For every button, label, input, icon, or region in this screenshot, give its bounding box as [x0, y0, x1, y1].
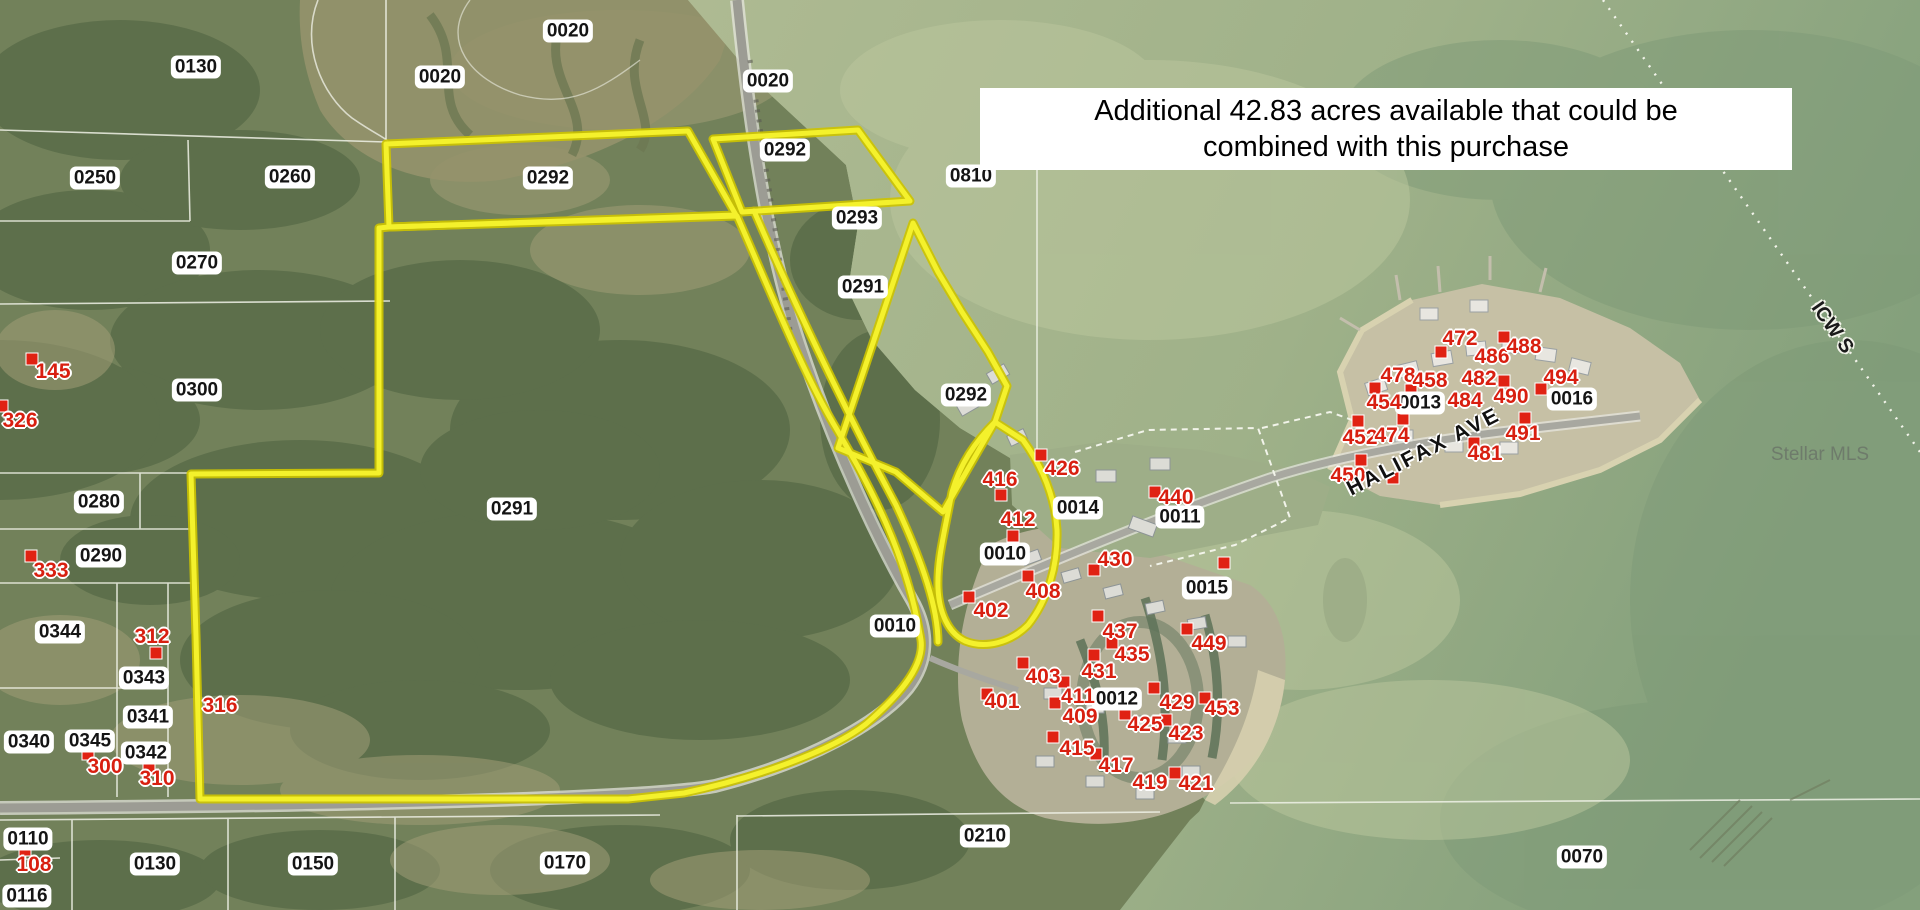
address-label: 417: [1098, 754, 1133, 778]
parcel-label: 0280: [74, 491, 124, 514]
address-marker-icon: [1218, 557, 1231, 570]
parcel-label: 0130: [171, 56, 221, 79]
parcel-label: 0070: [1557, 846, 1607, 869]
parcel-label: 0130: [130, 853, 180, 876]
address-label: 453: [1204, 697, 1239, 721]
address-label: 491: [1505, 422, 1540, 446]
parcel-label: 0010: [980, 543, 1030, 566]
parcel-label: 0291: [487, 498, 537, 521]
address-label: 316: [202, 694, 237, 718]
parcel-label: 0110: [3, 828, 52, 851]
address-label: 454: [1366, 391, 1401, 415]
parcel-label: 0300: [172, 379, 222, 402]
parcel-label: 0210: [960, 825, 1010, 848]
address-label: 430: [1097, 548, 1132, 572]
parcel-label: 0020: [415, 66, 465, 89]
address-label: 310: [139, 767, 174, 791]
parcel-label: 0015: [1182, 577, 1232, 600]
address-label: 472: [1442, 327, 1477, 351]
banner-note: Additional 42.83 acres available that co…: [980, 88, 1792, 170]
address-label: 426: [1044, 457, 1079, 481]
address-label: 333: [33, 559, 68, 583]
parcel-label: 0290: [76, 545, 126, 568]
parcel-label: 0292: [941, 384, 991, 407]
address-label: 409: [1062, 705, 1097, 729]
address-label: 437: [1102, 620, 1137, 644]
parcel-label: 0293: [832, 207, 882, 230]
parcel-label: 0014: [1053, 497, 1103, 520]
parcel-label: 0291: [838, 276, 888, 299]
address-label: 429: [1159, 691, 1194, 715]
address-label: 145: [35, 360, 70, 384]
address-label: 416: [982, 468, 1017, 492]
parcel-label: 0150: [288, 853, 338, 876]
address-label: 421: [1178, 772, 1213, 796]
address-label: 108: [16, 853, 51, 877]
parcel-label: 0020: [743, 70, 793, 93]
parcel-label: 0292: [760, 139, 810, 162]
parcel-label: 0020: [543, 20, 593, 43]
parcel-label: 0343: [119, 667, 169, 690]
address-label: 423: [1168, 722, 1203, 746]
parcel-label: 0342: [121, 742, 171, 765]
address-label: 425: [1127, 713, 1162, 737]
address-label: 412: [1000, 508, 1035, 532]
parcel-label: 0016: [1547, 388, 1597, 411]
parcel-label: 0250: [70, 167, 120, 190]
address-label: 452: [1342, 426, 1377, 450]
address-label: 481: [1467, 442, 1502, 466]
parcel-label: 0013: [1395, 392, 1445, 415]
parcel-label: 0341: [123, 706, 173, 729]
address-label: 478: [1380, 364, 1415, 388]
address-label: 326: [2, 409, 37, 433]
parcel-label: 0010: [870, 615, 920, 638]
address-label: 419: [1132, 771, 1167, 795]
parcel-label: 0292: [523, 167, 573, 190]
parcel-label: 0170: [540, 852, 590, 875]
parcel-label: 0345: [65, 730, 115, 753]
banner-line1: Additional 42.83 acres available that co…: [980, 93, 1792, 129]
parcel-label: 0270: [172, 252, 222, 275]
address-label: 486: [1474, 345, 1509, 369]
address-marker-icon: [1049, 697, 1062, 710]
banner-line2: combined with this purchase: [980, 129, 1792, 165]
aerial-parcel-map: Additional 42.83 acres available that co…: [0, 0, 1920, 910]
parcel-label: 0116: [2, 885, 51, 908]
address-label: 415: [1059, 737, 1094, 761]
parcel-label: 0260: [265, 166, 315, 189]
parcel-label: 0012: [1092, 688, 1142, 711]
address-label: 494: [1543, 366, 1578, 390]
address-label: 431: [1081, 660, 1116, 684]
parcel-label: 0344: [35, 621, 85, 644]
address-label: 312: [134, 625, 169, 649]
address-label: 490: [1493, 385, 1528, 409]
address-label: 435: [1114, 643, 1149, 667]
address-label: 440: [1158, 486, 1193, 510]
address-label: 402: [973, 599, 1008, 623]
parcel-label: 0340: [4, 731, 54, 754]
address-label: 474: [1374, 424, 1409, 448]
address-label: 484: [1447, 389, 1482, 413]
address-label: 482: [1461, 367, 1496, 391]
address-marker-icon: [1047, 731, 1060, 744]
stellar-mls-watermark: Stellar MLS: [1771, 444, 1869, 466]
address-label: 403: [1025, 665, 1060, 689]
address-label: 401: [984, 690, 1019, 714]
address-label: 458: [1412, 369, 1447, 393]
address-label: 408: [1025, 580, 1060, 604]
address-label: 449: [1191, 632, 1226, 656]
address-label: 488: [1506, 335, 1541, 359]
address-label: 300: [87, 755, 122, 779]
